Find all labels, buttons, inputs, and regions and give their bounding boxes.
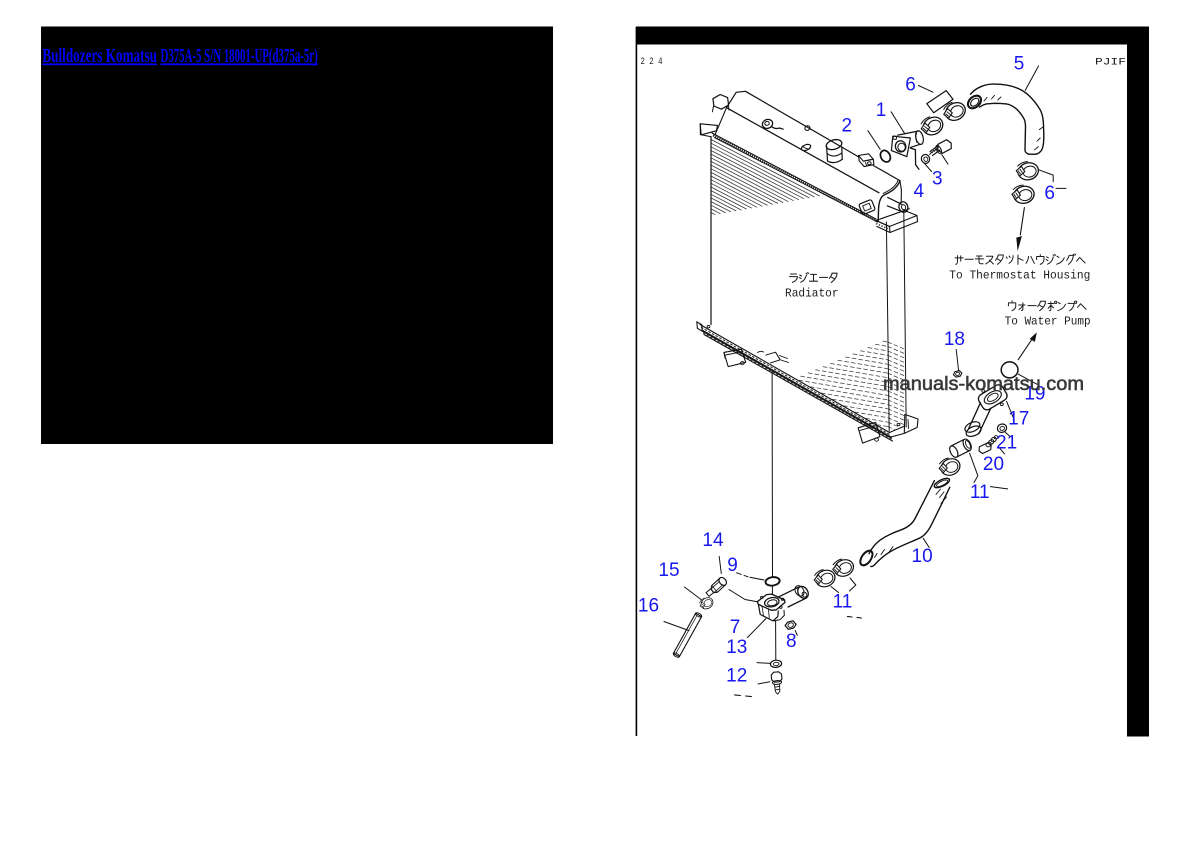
svg-text:6: 6 <box>1044 183 1055 204</box>
svg-text:14: 14 <box>702 530 724 551</box>
svg-text:18: 18 <box>944 329 965 350</box>
svg-text:1: 1 <box>876 100 887 121</box>
svg-text:7: 7 <box>730 617 741 638</box>
svg-text:Radiator: Radiator <box>785 287 839 301</box>
svg-text:15: 15 <box>658 560 679 581</box>
svg-text:4: 4 <box>914 181 925 202</box>
svg-text:8: 8 <box>786 631 797 652</box>
svg-text:manuals-komatsu.com: manuals-komatsu.com <box>883 373 1084 395</box>
svg-text:11: 11 <box>970 482 990 503</box>
svg-text:21: 21 <box>996 433 1017 454</box>
svg-text:2 2 4: 2 2 4 <box>641 56 663 68</box>
svg-text:To Thermostat Housing: To Thermostat Housing <box>949 268 1090 282</box>
svg-text:3: 3 <box>932 168 943 189</box>
svg-text:To Water Pump: To Water Pump <box>1005 315 1091 329</box>
svg-text:17: 17 <box>1008 409 1029 430</box>
svg-text:20: 20 <box>983 454 1004 475</box>
svg-text:10: 10 <box>912 546 933 567</box>
svg-text:2: 2 <box>842 116 853 137</box>
svg-text:11: 11 <box>833 591 853 612</box>
svg-text:6: 6 <box>905 74 916 95</box>
svg-text:9: 9 <box>727 555 738 576</box>
svg-text:5: 5 <box>1014 54 1025 75</box>
svg-text:12: 12 <box>726 666 747 687</box>
svg-text:PJIF: PJIF <box>1095 56 1126 68</box>
svg-text:13: 13 <box>726 637 747 658</box>
svg-text:16: 16 <box>638 595 659 616</box>
